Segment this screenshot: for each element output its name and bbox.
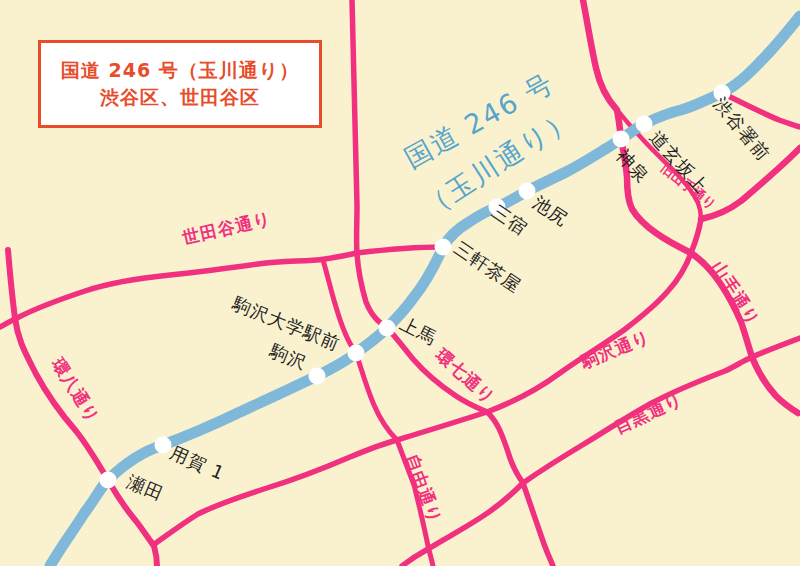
station-dot-yoga-1: [155, 437, 172, 454]
map-title-line1: 国道 246 号（玉川通り）: [61, 61, 299, 80]
station-dot-dogenzaka-ue: [636, 116, 653, 133]
station-dot-komazawa-daigaku-ekimae: [348, 345, 365, 362]
station-dot-seta: [100, 472, 117, 489]
map-title-box: 国道 246 号（玉川通り） 渋谷区、世田谷区: [38, 40, 322, 128]
station-dot-ikejiri: [519, 183, 536, 200]
station-dot-sangenjaya: [435, 239, 452, 256]
station-dot-komazawa: [309, 368, 326, 385]
station-dot-kamiuma: [379, 320, 396, 337]
map-title-line2: 渋谷区、世田谷区: [100, 88, 260, 107]
route-map: 国道 246 号 （玉川通り） 世田谷通り 環八通り 環七通り 自由通り 駒沢通…: [0, 0, 800, 566]
